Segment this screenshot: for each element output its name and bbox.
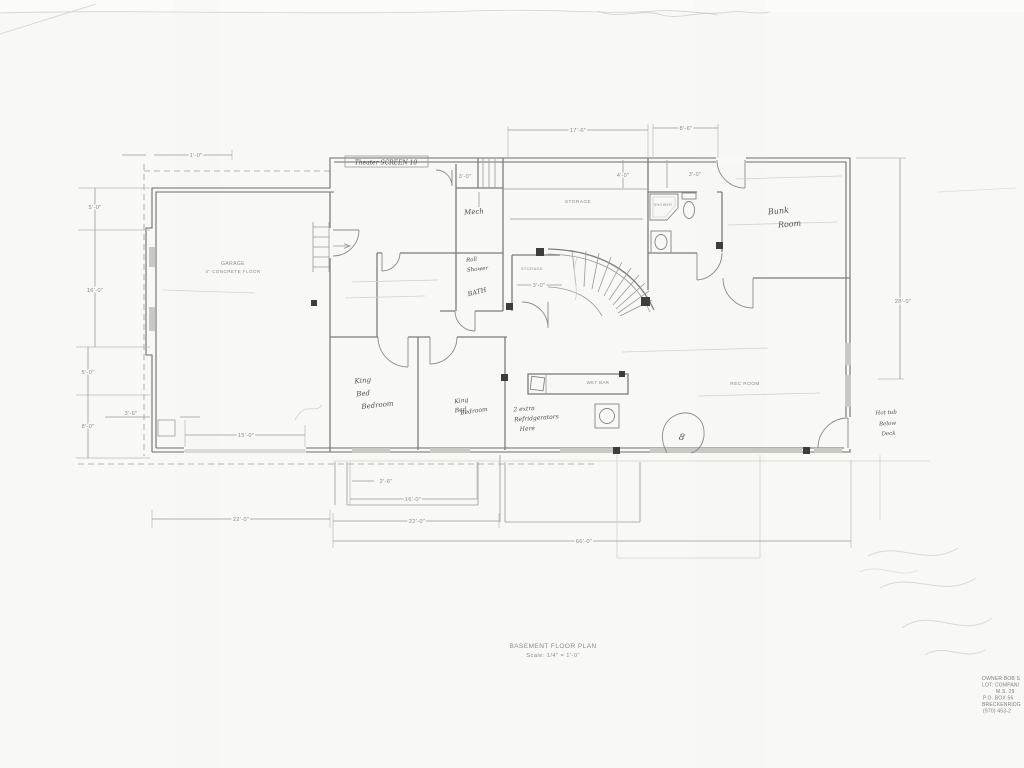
dim-15-0: 15'-0" [238, 433, 255, 439]
bedroom-window [430, 448, 470, 453]
bunk-room-note-1: Bunk [767, 206, 790, 217]
dim-28-0: 28'-0" [895, 299, 912, 305]
owner-line-1: OWNER:BOB S [982, 676, 1021, 682]
dim-66-0: 66'-0" [576, 539, 593, 545]
owner-line-2: LOT: COMPANI [982, 683, 1019, 689]
rec-room-label: REC ROOM [730, 381, 760, 387]
dim-8-0: 8'-0" [81, 424, 94, 430]
dim-16-0-left: 16'-0" [87, 288, 104, 294]
garage-floor-note: 4" CONCRETE FLOOR [205, 269, 260, 274]
scanned-floor-plan-page: 8 [0, 0, 1024, 768]
wet-bar-label: WET BAR [587, 380, 610, 385]
hot-tub-note-3: Deck [880, 431, 896, 438]
dim-17-6: 17'-6" [570, 128, 587, 134]
rec-room-window [845, 375, 851, 407]
dim-16-0-bottom: 16'-0" [405, 497, 422, 503]
dim-8-6: 8'-6" [679, 126, 692, 132]
paper-background [0, 0, 1024, 768]
rec-room-window-wall [814, 448, 842, 453]
storage-closet-label: STORAGE [521, 266, 543, 271]
bedroom-window [352, 448, 390, 453]
garage-door-panel [185, 449, 305, 453]
drawing-title: BASEMENT FLOOR PLAN [509, 643, 596, 650]
dim-22-0-garage: 22'-0" [233, 517, 250, 523]
owner-line-5: BRECKENRIDG [982, 702, 1021, 708]
dim-5-0-lower: 5'-0" [81, 370, 94, 376]
dim-3-0-mech: 3'-0" [459, 174, 471, 180]
owner-line-4: P.O. BOX 56 [983, 696, 1013, 702]
shower-label: SHOWER [654, 203, 673, 207]
drawing-scale: Scale: 1/4" = 1'-0" [526, 653, 580, 659]
roll-shower-note-1: Roll [465, 257, 478, 264]
rec-room-window [845, 343, 851, 365]
dim-5-0-upper: 5'-0" [88, 205, 101, 211]
garage-window [149, 307, 155, 331]
dim-2-6: 2'-6" [379, 479, 392, 485]
basement-floor-plan-drawing: 8 [0, 0, 1024, 768]
garage-window [149, 247, 155, 267]
storage-label: STORAGE [565, 199, 591, 205]
hot-tub-note-1: Hot tub [874, 410, 897, 417]
dim-4-0: 4'-0" [617, 173, 629, 179]
king-bedroom1-note-2: Bed [355, 389, 371, 399]
scan-artifacts [0, 0, 1024, 768]
owner-line-3: M.S. 29 [996, 689, 1015, 695]
dim-3-0-closet: 3'-0" [533, 283, 545, 289]
dim-3-6: 3'-6" [124, 411, 137, 417]
hot-tub-note-2: Below [878, 421, 897, 428]
fridge-note-3: Here [519, 425, 536, 433]
garage-label: GARAGE [221, 261, 245, 267]
theater-screen-note: Theater SCREEN 10 [355, 160, 418, 167]
dim-22-0-bed: 22'-0" [409, 519, 426, 525]
mech-note: Mech [463, 207, 484, 216]
rec-room-window-wall [560, 448, 614, 453]
rec-room-window-wall [650, 448, 802, 453]
dim-1-0: 1'-0" [189, 153, 202, 159]
owner-line-6: (970) 453-2 [983, 709, 1011, 715]
dim-3-0-vestibule: 3'-0" [689, 172, 701, 178]
